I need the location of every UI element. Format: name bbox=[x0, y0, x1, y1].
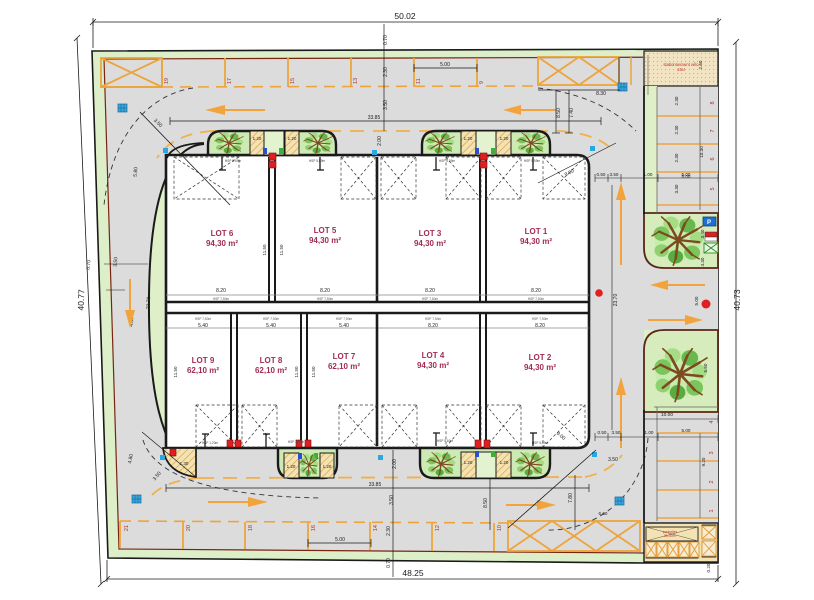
svg-text:1.30: 1.30 bbox=[180, 461, 189, 466]
svg-text:2.30: 2.30 bbox=[674, 96, 679, 105]
svg-text:LOT 4: LOT 4 bbox=[422, 351, 445, 360]
svg-text:5.00: 5.00 bbox=[682, 428, 691, 433]
svg-text:8.30: 8.30 bbox=[596, 91, 606, 97]
svg-text:8.20: 8.20 bbox=[425, 288, 435, 294]
svg-text:6: 6 bbox=[710, 157, 716, 160]
svg-text:11: 11 bbox=[416, 78, 422, 84]
svg-text:1.20: 1.20 bbox=[464, 136, 473, 141]
svg-text:5.00: 5.00 bbox=[682, 174, 691, 179]
svg-text:1.00: 1.00 bbox=[645, 430, 654, 435]
svg-text:5.40: 5.40 bbox=[198, 323, 208, 329]
svg-text:23.70: 23.70 bbox=[146, 296, 153, 309]
svg-text:14: 14 bbox=[373, 525, 379, 531]
svg-text:LOT 9: LOT 9 bbox=[192, 356, 215, 365]
svg-text:1.20: 1.20 bbox=[500, 460, 509, 465]
svg-text:15: 15 bbox=[290, 78, 296, 84]
svg-text:0.70: 0.70 bbox=[386, 558, 392, 568]
svg-text:HSP 7,50m: HSP 7,50m bbox=[263, 317, 280, 321]
svg-text:5.40: 5.40 bbox=[266, 323, 276, 329]
svg-text:7: 7 bbox=[710, 129, 716, 132]
svg-text:10: 10 bbox=[497, 525, 503, 531]
svg-text:8.20: 8.20 bbox=[428, 323, 438, 329]
svg-text:10.00: 10.00 bbox=[661, 412, 673, 418]
svg-text:LOT 8: LOT 8 bbox=[260, 356, 283, 365]
svg-text:8.20: 8.20 bbox=[531, 288, 541, 294]
svg-text:HSP 7,50m: HSP 7,50m bbox=[422, 297, 439, 301]
svg-text:3: 3 bbox=[709, 451, 715, 454]
svg-text:0.70: 0.70 bbox=[383, 35, 389, 45]
svg-text:62,10 m²: 62,10 m² bbox=[328, 362, 360, 371]
svg-text:4: 4 bbox=[709, 420, 715, 423]
svg-text:3.50: 3.50 bbox=[389, 495, 395, 505]
svg-text:0.70: 0.70 bbox=[86, 260, 93, 270]
svg-text:5: 5 bbox=[710, 187, 716, 190]
svg-text:11.50: 11.50 bbox=[262, 244, 267, 255]
svg-text:HSP 5,60m: HSP 5,60m bbox=[437, 439, 454, 443]
svg-text:3.50: 3.50 bbox=[383, 100, 389, 110]
svg-text:5.00: 5.00 bbox=[694, 296, 699, 305]
svg-text:2.30: 2.30 bbox=[674, 153, 679, 162]
svg-text:40.73: 40.73 bbox=[732, 289, 742, 311]
svg-text:2.30: 2.30 bbox=[383, 67, 389, 77]
svg-text:5.40: 5.40 bbox=[339, 323, 349, 329]
svg-text:50.02: 50.02 bbox=[394, 11, 416, 21]
svg-text:62,10 m²: 62,10 m² bbox=[255, 366, 287, 375]
svg-text:94,30 m²: 94,30 m² bbox=[520, 237, 552, 246]
svg-text:18: 18 bbox=[248, 525, 254, 531]
svg-text:1.20: 1.20 bbox=[500, 136, 509, 141]
svg-text:17: 17 bbox=[227, 78, 233, 84]
svg-text:3.40: 3.40 bbox=[700, 229, 705, 238]
svg-text:2.30: 2.30 bbox=[386, 526, 392, 536]
svg-text:HSP 5,59m: HSP 5,59m bbox=[439, 159, 456, 163]
svg-text:5.80: 5.80 bbox=[133, 167, 140, 177]
svg-text:LOT 6: LOT 6 bbox=[211, 229, 234, 238]
svg-text:7.40: 7.40 bbox=[569, 108, 575, 118]
svg-text:23.70: 23.70 bbox=[613, 294, 619, 307]
svg-text:1.20: 1.20 bbox=[287, 464, 296, 469]
svg-text:HSP 3,59m: HSP 3,59m bbox=[288, 440, 305, 444]
svg-text:LOT 1: LOT 1 bbox=[525, 227, 548, 236]
svg-text:LOT 5: LOT 5 bbox=[314, 226, 337, 235]
svg-text:3.50: 3.50 bbox=[113, 257, 120, 267]
svg-text:HSP 7,50m: HSP 7,50m bbox=[532, 317, 549, 321]
svg-text:11.50: 11.50 bbox=[294, 366, 299, 377]
svg-text:4.30: 4.30 bbox=[700, 257, 705, 266]
svg-text:35,30m²: 35,30m² bbox=[664, 534, 677, 538]
svg-text:HSP 5,59m: HSP 5,59m bbox=[524, 159, 541, 163]
svg-text:94,30 m²: 94,30 m² bbox=[417, 361, 449, 370]
svg-text:11.50: 11.50 bbox=[311, 366, 316, 377]
svg-text:21: 21 bbox=[124, 525, 130, 531]
svg-text:2.00: 2.00 bbox=[377, 136, 383, 146]
svg-text:8.20: 8.20 bbox=[535, 323, 545, 329]
svg-text:94,30 m²: 94,30 m² bbox=[414, 239, 446, 248]
svg-text:5.00: 5.00 bbox=[440, 62, 450, 68]
svg-text:8.50: 8.50 bbox=[483, 498, 489, 508]
svg-text:94,30 m²: 94,30 m² bbox=[309, 236, 341, 245]
svg-text:9: 9 bbox=[479, 81, 485, 84]
svg-text:48.25: 48.25 bbox=[402, 568, 424, 578]
svg-text:0.50: 0.50 bbox=[597, 172, 606, 177]
svg-text:8.20: 8.20 bbox=[216, 288, 226, 294]
svg-text:1: 1 bbox=[709, 509, 715, 512]
svg-text:2.30: 2.30 bbox=[674, 125, 679, 134]
svg-text:0.50: 0.50 bbox=[598, 430, 607, 435]
svg-text:5.00: 5.00 bbox=[335, 537, 345, 543]
svg-text:5.50: 5.50 bbox=[703, 363, 708, 372]
svg-text:0.20: 0.20 bbox=[706, 563, 711, 572]
svg-text:9.20: 9.20 bbox=[701, 457, 706, 466]
svg-text:16: 16 bbox=[311, 525, 317, 531]
svg-text:HSP 7,50m: HSP 7,50m bbox=[317, 297, 334, 301]
svg-text:HSP 7,50m: HSP 7,50m bbox=[425, 317, 442, 321]
svg-text:3.50: 3.50 bbox=[612, 430, 621, 435]
svg-text:2.60: 2.60 bbox=[698, 60, 703, 69]
svg-text:33.85: 33.85 bbox=[368, 115, 381, 121]
svg-text:1.20: 1.20 bbox=[323, 464, 332, 469]
svg-text:1.20: 1.20 bbox=[288, 136, 297, 141]
svg-text:HSP 7,50m: HSP 7,50m bbox=[213, 297, 230, 301]
svg-text:11.50: 11.50 bbox=[173, 366, 178, 377]
svg-text:HSP 7,50m: HSP 7,50m bbox=[336, 317, 353, 321]
svg-text:HSP 7,50m: HSP 7,50m bbox=[195, 317, 212, 321]
svg-text:HSP 7,50m: HSP 7,50m bbox=[528, 297, 545, 301]
svg-text:1.20: 1.20 bbox=[253, 136, 262, 141]
svg-text:LOT 7: LOT 7 bbox=[333, 352, 356, 361]
svg-text:HSP 5,59m: HSP 5,59m bbox=[225, 159, 242, 163]
svg-text:P: P bbox=[707, 220, 711, 226]
svg-text:33.85: 33.85 bbox=[369, 482, 382, 488]
svg-text:8.20: 8.20 bbox=[320, 288, 330, 294]
svg-text:12: 12 bbox=[435, 525, 441, 531]
svg-text:3.50: 3.50 bbox=[608, 457, 618, 463]
svg-text:2: 2 bbox=[709, 480, 715, 483]
svg-text:3.30: 3.30 bbox=[674, 184, 679, 193]
svg-text:11.50: 11.50 bbox=[279, 244, 284, 255]
svg-text:10.30: 10.30 bbox=[699, 146, 704, 158]
svg-text:8: 8 bbox=[710, 101, 716, 104]
svg-text:HSP 5,59m: HSP 5,59m bbox=[309, 159, 326, 163]
svg-text:94,30 m²: 94,30 m² bbox=[524, 363, 556, 372]
svg-text:20: 20 bbox=[186, 525, 192, 531]
svg-text:40.77: 40.77 bbox=[76, 289, 87, 311]
svg-text:1.00: 1.00 bbox=[644, 172, 653, 177]
svg-text:6.60: 6.60 bbox=[599, 511, 608, 516]
svg-text:62,10 m²: 62,10 m² bbox=[187, 366, 219, 375]
svg-text:15U: 15U bbox=[677, 67, 685, 72]
svg-text:HSP 5,59m: HSP 5,59m bbox=[532, 441, 549, 445]
svg-text:7.80: 7.80 bbox=[568, 493, 574, 503]
svg-text:LOT 3: LOT 3 bbox=[419, 229, 442, 238]
svg-text:1.20: 1.20 bbox=[464, 460, 473, 465]
svg-text:3.50: 3.50 bbox=[610, 172, 619, 177]
svg-text:13: 13 bbox=[353, 78, 359, 84]
svg-text:8.50: 8.50 bbox=[556, 108, 562, 118]
svg-text:94,30 m²: 94,30 m² bbox=[206, 239, 238, 248]
svg-text:LOT 2: LOT 2 bbox=[529, 353, 552, 362]
svg-text:19: 19 bbox=[164, 78, 170, 84]
